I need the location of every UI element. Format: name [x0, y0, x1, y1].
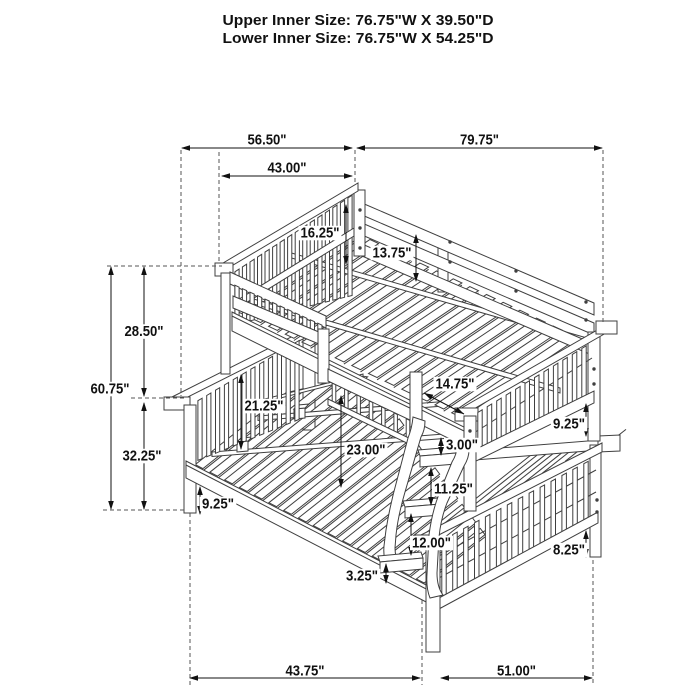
- svg-text:32.25": 32.25": [123, 448, 162, 465]
- svg-text:11.25": 11.25": [434, 481, 473, 498]
- svg-text:43.00": 43.00": [268, 160, 307, 177]
- svg-text:43.75": 43.75": [286, 663, 325, 680]
- svg-text:Upper Inner Size: 76.75"W X 39: Upper Inner Size: 76.75"W X 39.50"D: [223, 12, 494, 29]
- svg-text:56.50": 56.50": [248, 132, 287, 149]
- svg-text:16.25": 16.25": [301, 225, 340, 242]
- svg-text:12.00": 12.00": [412, 535, 451, 552]
- svg-text:79.75": 79.75": [460, 132, 499, 149]
- svg-text:14.75": 14.75": [436, 376, 475, 393]
- svg-text:8.25": 8.25": [553, 542, 585, 559]
- svg-text:3.25": 3.25": [346, 568, 378, 585]
- svg-text:13.75": 13.75": [373, 245, 412, 262]
- svg-text:28.50": 28.50": [125, 323, 164, 340]
- svg-text:51.00": 51.00": [497, 663, 536, 680]
- svg-text:21.25": 21.25": [245, 398, 284, 415]
- svg-text:60.75": 60.75": [91, 381, 130, 398]
- svg-text:9.25": 9.25": [202, 496, 234, 513]
- svg-text:9.25": 9.25": [553, 416, 585, 433]
- svg-text:23.00": 23.00": [347, 442, 386, 459]
- svg-text:3.00": 3.00": [446, 437, 478, 454]
- svg-text:Lower Inner Size: 76.75"W X 54: Lower Inner Size: 76.75"W X 54.25"D: [223, 30, 494, 47]
